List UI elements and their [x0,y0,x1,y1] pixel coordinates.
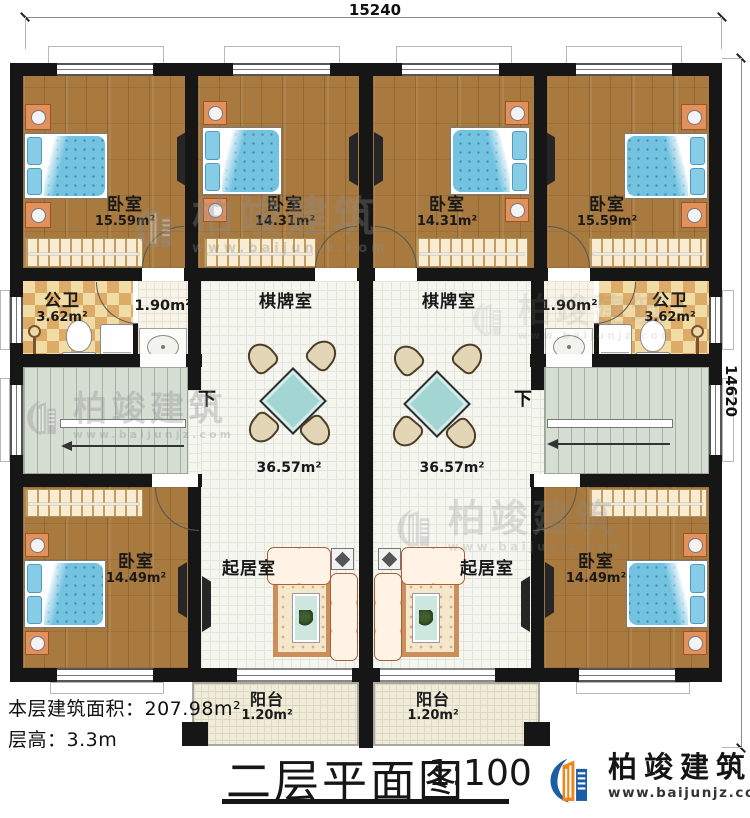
wardrobe [25,238,143,267]
double-bed [624,133,708,199]
living-right-label: 起居室 [460,560,514,579]
room-area: 15.59m² [577,215,637,230]
door-opening [375,268,417,281]
wall [534,63,547,281]
balcony-left-label: 阳台 1.20m² [241,691,292,723]
floor-plan-canvas: 15240 14620 下 下 [0,0,750,818]
room-name: 公卫 [644,292,695,311]
window-sill [566,46,682,64]
window [57,63,153,76]
brand-name: 柏竣建筑 [608,752,750,782]
wall [10,268,722,281]
room-name: 卧室 [95,196,155,215]
room-name: 起居室 [460,560,514,579]
window [402,63,499,76]
dimension-right-value: 14620 [722,356,740,426]
wash-right-label: 1.90m² [540,298,597,314]
games-right-label: 棋牌室 [422,293,476,312]
room-name: 卧室 [577,196,637,215]
bedroom-bottom-right-label: 卧室 14.49m² [566,553,626,587]
double-bed [626,560,708,628]
stair-arrow-icon [547,439,558,449]
sofa [330,573,358,661]
games-right-area: 36.57m² [419,461,484,477]
sofa [401,547,465,585]
brand-logo: 柏竣建筑 www.baijunjz.com [543,752,750,806]
floor-area-note: 本层建筑面积：207.98m² [8,694,241,721]
window-sill [396,46,512,64]
window-sill [224,46,340,64]
dimension-extension-line [721,17,722,49]
stair-handrail [60,419,186,428]
door-opening [140,354,186,367]
games-left-area: 36.57m² [256,461,321,477]
mattress [627,136,688,196]
wall [531,268,544,390]
balcony-column [182,722,208,746]
balcony-column [524,722,550,746]
window [10,385,23,455]
brand-logo-icon [543,752,599,806]
wall [188,268,201,390]
pillows [27,137,42,195]
nightstand [683,631,707,655]
tv [202,576,211,632]
shower-drain-icon [28,325,41,338]
room-area: 36.57m² [256,461,321,477]
bedroom-bottom-left-label: 卧室 14.49m² [106,553,166,587]
room-area: 1.90m² [540,298,597,314]
mattress [629,563,688,625]
room-name: 公卫 [36,292,87,311]
nightstand [681,202,707,228]
plan-scale: 1:100 [428,753,532,794]
room-name: 起居室 [222,560,276,579]
mattress [44,136,105,196]
dimension-top-line [25,17,722,18]
nightstand [683,533,707,557]
room-area: 3.62m² [36,311,87,326]
title-underline [222,799,509,804]
sliding-door [380,668,495,682]
wardrobe [589,238,707,267]
door-opening [152,474,198,487]
wardrobe [589,489,707,517]
room-area: 14.49m² [106,572,166,587]
window [57,668,153,682]
bedroom-top-mid-left-label: 卧室 14.31m² [255,196,315,230]
dimension-extension-line [722,58,742,59]
door-opening [142,268,184,281]
stairs-down-label: 下 [514,385,532,411]
nightstand [25,104,51,130]
tv [545,562,554,618]
wall [709,63,722,682]
nightstand [505,101,529,125]
double-bed [24,133,108,199]
mattress [453,130,510,192]
room-area: 1.20m² [241,709,292,724]
room-area: 14.49m² [566,572,626,587]
dimension-right-line [741,58,742,748]
door-opening [534,474,580,487]
nightstand [203,101,227,125]
tv [546,132,555,186]
pillows [27,564,42,624]
window-sill [48,46,164,64]
room-area: 15.59m² [95,215,155,230]
dimension-extension-line [722,747,742,748]
window [10,297,23,343]
stair-direction-line [72,445,184,447]
stair-handrail [547,419,673,428]
wall [185,63,198,281]
tv-cabinet [331,548,354,570]
room-name: 阳台 [241,691,292,709]
window [709,297,722,343]
tv [178,562,187,618]
door-opening [546,354,592,367]
nightstand [681,104,707,130]
pillows [690,137,705,195]
room-area: 14.31m² [255,215,315,230]
wall [359,63,373,748]
nightstand [25,533,49,557]
mattress [44,563,103,625]
balcony-right-label: 阳台 1.20m² [407,691,458,723]
tv [374,132,383,186]
double-bed [450,127,530,195]
dimension-extension-line [25,17,26,49]
window [579,668,675,682]
stair-direction-line [558,443,670,445]
tv [521,576,530,632]
window-sill [50,682,164,694]
wash-left-label: 1.90m² [134,298,191,314]
games-left-label: 棋牌室 [259,293,313,312]
living-left-label: 起居室 [222,560,276,579]
tv [349,132,358,186]
pillows [512,131,527,191]
nightstand [25,202,51,228]
stair-arrow-icon [61,441,72,451]
plant [419,610,433,626]
bedroom-top-left-label: 卧室 15.59m² [95,196,155,230]
room-name: 卧室 [566,553,626,572]
pillows [205,131,220,191]
room-name: 阳台 [407,691,458,709]
room-area: 1.90m² [134,298,191,314]
room-area: 14.31m² [417,215,477,230]
sliding-door [237,668,352,682]
shower-drain-icon [691,325,704,338]
room-area: 36.57m² [419,461,484,477]
window-sill [0,290,10,350]
wardrobe [416,238,528,267]
nightstand [505,198,529,222]
plant [299,610,313,626]
wardrobe [204,238,316,267]
floor-patch [531,390,544,474]
wardrobe [25,489,143,517]
window-sill [576,682,690,694]
door-opening [315,268,357,281]
sofa [267,547,331,585]
pillows [690,564,705,624]
room-name: 卧室 [417,196,477,215]
brand-url: www.baijunjz.com [608,785,750,801]
mattress [222,130,279,192]
tv-cabinet [378,548,401,570]
window [233,63,330,76]
double-bed [24,560,106,628]
sofa [374,573,402,661]
stairs-down-label: 下 [198,385,216,411]
room-name: 棋牌室 [259,293,313,312]
room-name: 卧室 [106,553,166,572]
window [709,385,722,455]
bedroom-top-mid-right-label: 卧室 14.31m² [417,196,477,230]
room-name: 卧室 [255,196,315,215]
window [576,63,672,76]
room-area: 3.62m² [644,311,695,326]
nightstand [203,198,227,222]
door-opening [548,268,590,281]
nightstand [25,631,49,655]
double-bed [202,127,282,195]
room-name: 棋牌室 [422,293,476,312]
bedroom-top-right-label: 卧室 15.59m² [577,196,637,230]
wall [10,63,23,682]
floor-height-note: 层高：3.3m [8,725,117,752]
window-sill [0,378,10,462]
room-area: 1.20m² [407,709,458,724]
bath-right-label: 公卫 3.62m² [644,292,695,326]
bath-left-label: 公卫 3.62m² [36,292,87,326]
window-sill [722,290,734,350]
